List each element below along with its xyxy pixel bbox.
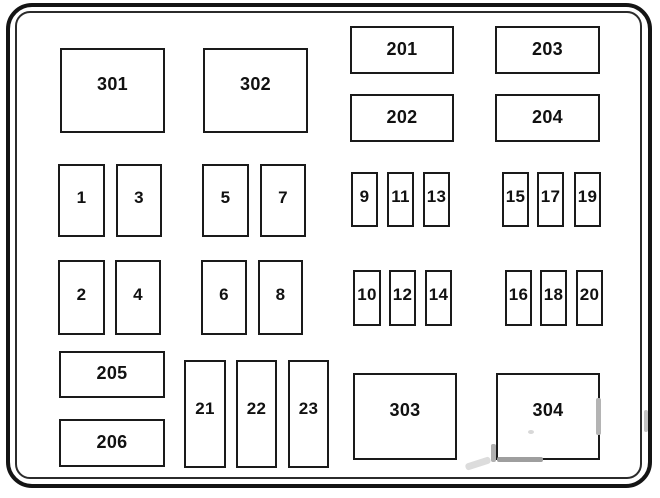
box-label: 6 bbox=[219, 285, 229, 305]
box-10: 10 bbox=[353, 270, 381, 326]
box-6: 6 bbox=[201, 260, 247, 335]
box-label: 13 bbox=[427, 187, 447, 207]
box-11: 11 bbox=[387, 172, 414, 227]
box-4: 4 bbox=[115, 260, 161, 335]
box-302: 302 bbox=[203, 48, 308, 133]
box-201: 201 bbox=[350, 26, 454, 74]
box-label: 206 bbox=[97, 432, 128, 453]
box-label: 2 bbox=[77, 285, 87, 305]
box-203: 203 bbox=[495, 26, 600, 74]
box-304: 304 bbox=[496, 373, 600, 460]
box-label: 10 bbox=[357, 285, 377, 305]
box-17: 17 bbox=[537, 172, 564, 227]
box-5: 5 bbox=[202, 164, 249, 237]
box-label: 8 bbox=[276, 285, 286, 305]
box-303: 303 bbox=[353, 373, 457, 460]
box-label: 22 bbox=[247, 399, 267, 419]
box-label: 21 bbox=[195, 399, 215, 419]
box-label: 205 bbox=[97, 363, 128, 384]
box-label: 4 bbox=[133, 285, 143, 305]
box-label: 7 bbox=[278, 188, 288, 208]
box-label: 1 bbox=[77, 188, 87, 208]
box-label: 16 bbox=[509, 285, 529, 305]
box-label: 9 bbox=[360, 187, 370, 207]
box-label: 3 bbox=[134, 188, 144, 208]
box-3: 3 bbox=[116, 164, 162, 237]
box-label: 203 bbox=[532, 39, 563, 60]
box-label: 11 bbox=[391, 187, 410, 207]
box-23: 23 bbox=[288, 360, 329, 468]
box-7: 7 bbox=[260, 164, 306, 237]
box-label: 15 bbox=[506, 187, 526, 207]
fuse-box-diagram: 3013022012032022041357911131517192468101… bbox=[0, 0, 660, 498]
box-8: 8 bbox=[258, 260, 303, 335]
box-14: 14 bbox=[425, 270, 452, 326]
box-label: 201 bbox=[387, 39, 418, 60]
box-label: 20 bbox=[580, 285, 600, 305]
box-12: 12 bbox=[389, 270, 416, 326]
box-label: 19 bbox=[578, 187, 598, 207]
box-13: 13 bbox=[423, 172, 450, 227]
box-9: 9 bbox=[351, 172, 378, 227]
box-label: 303 bbox=[390, 400, 421, 421]
box-1: 1 bbox=[58, 164, 105, 237]
box-205: 205 bbox=[59, 351, 165, 398]
box-206: 206 bbox=[59, 419, 165, 467]
box-label: 304 bbox=[533, 400, 564, 421]
box-21: 21 bbox=[184, 360, 226, 468]
box-label: 5 bbox=[221, 188, 231, 208]
box-15: 15 bbox=[502, 172, 529, 227]
box-18: 18 bbox=[540, 270, 567, 326]
box-301: 301 bbox=[60, 48, 165, 133]
box-20: 20 bbox=[576, 270, 603, 326]
box-label: 23 bbox=[299, 399, 319, 419]
box-label: 302 bbox=[240, 74, 271, 95]
box-204: 204 bbox=[495, 94, 600, 142]
box-202: 202 bbox=[350, 94, 454, 142]
box-2: 2 bbox=[58, 260, 105, 335]
box-16: 16 bbox=[505, 270, 532, 326]
box-label: 204 bbox=[532, 107, 563, 128]
box-label: 202 bbox=[387, 107, 418, 128]
box-label: 14 bbox=[429, 285, 449, 305]
box-label: 12 bbox=[393, 285, 413, 305]
box-19: 19 bbox=[574, 172, 601, 227]
box-label: 17 bbox=[541, 187, 561, 207]
box-22: 22 bbox=[236, 360, 277, 468]
box-label: 301 bbox=[97, 74, 128, 95]
box-label: 18 bbox=[544, 285, 564, 305]
